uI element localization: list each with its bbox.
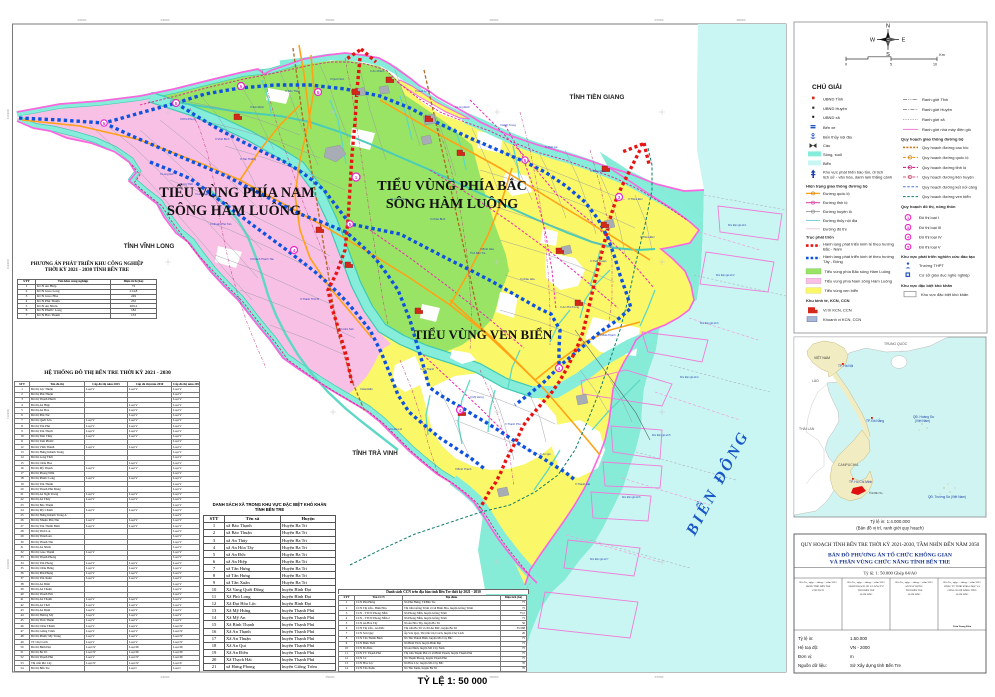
svg-text:1124000: 1124000	[6, 258, 10, 268]
svg-text:682000: 682000	[737, 18, 746, 22]
svg-text:656000: 656000	[326, 18, 335, 22]
svg-text:Bến Tre, ngày......tháng......: Bến Tre, ngày......tháng......năm 2023	[944, 581, 982, 584]
svg-text:Đơn vị:: Đơn vị:	[798, 654, 812, 659]
svg-text:Trần Trung Kiên: Trần Trung Kiên	[953, 625, 972, 628]
svg-text:Quy hoạch đường ven biển: Quy hoạch đường ven biển	[922, 194, 971, 199]
svg-text:1114000: 1114000	[6, 409, 10, 419]
svg-text:SỞ KẾ HOẠCH CH VÀ ĐẦU TƯ: SỞ KẾ HOẠCH CH VÀ ĐẦU TƯ	[848, 585, 883, 588]
svg-text:Khu kinh tế, KCN, CCN: Khu kinh tế, KCN, CCN	[806, 298, 850, 303]
svg-text:Khu vực đặc biệt khó khăn: Khu vực đặc biệt khó khăn	[901, 283, 953, 288]
svg-text:Bến Tre, ngày......tháng......: Bến Tre, ngày......tháng......năm 2023	[896, 581, 934, 584]
svg-text:5: 5	[907, 245, 909, 249]
svg-text:Bắc - Nam: Bắc - Nam	[823, 246, 843, 251]
svg-text:1104000: 1104000	[6, 558, 10, 568]
svg-text:Sở Xây dựng tỉnh Bến Tre: Sở Xây dựng tỉnh Bến Tre	[850, 663, 902, 668]
svg-text:(Việt Nam): (Việt Nam)	[915, 419, 930, 423]
svg-text:Quy hoạch đường tỉnh lộ: Quy hoạch đường tỉnh lộ	[922, 165, 967, 170]
svg-text:Bến thủy nội địa: Bến thủy nội địa	[823, 134, 852, 139]
svg-text:TỈNH BẾN TRE: TỈNH BẾN TRE	[906, 589, 923, 592]
svg-text:0: 0	[845, 63, 847, 67]
svg-text:Ranh giới Tỉnh: Ranh giới Tỉnh	[922, 97, 948, 102]
svg-text:Ranh giới nhà máy điện gió: Ranh giới nhà máy điện gió	[922, 127, 972, 132]
svg-text:UBND Tỉnh: UBND Tỉnh	[823, 96, 843, 101]
svg-text:TP. Đà Nẵng: TP. Đà Nẵng	[866, 418, 884, 423]
svg-text:VN - 2000: VN - 2000	[850, 645, 870, 650]
svg-text:666000: 666000	[490, 18, 499, 22]
svg-text:Đường đô thị: Đường đô thị	[823, 226, 847, 231]
svg-text:Trường THPT: Trường THPT	[919, 263, 944, 268]
svg-text:Tây - Đông: Tây - Đông	[823, 259, 843, 264]
svg-text:656000: 656000	[326, 675, 335, 679]
svg-text:Quy hoạch đường quốc lộ: Quy hoạch đường quốc lộ	[922, 155, 969, 160]
svg-text:BẢN ĐỒ PHƯƠNG ÁN TỔ CHỨC KHÔNG: BẢN ĐỒ PHƯƠNG ÁN TỔ CHỨC KHÔNG GIAN	[828, 551, 952, 559]
svg-text:E: E	[902, 38, 906, 44]
svg-text:3: 3	[907, 226, 909, 230]
svg-text:LÀO: LÀO	[812, 379, 819, 383]
svg-text:UBND Huyện: UBND Huyện	[823, 106, 847, 111]
svg-text:CHỦ TỊCH: CHỦ TỊCH	[812, 589, 824, 592]
svg-text:UBND xã: UBND xã	[823, 115, 840, 120]
svg-text:Đô thị loại V: Đô thị loại V	[919, 244, 941, 249]
svg-text:Hệ toạ độ:: Hệ toạ độ:	[798, 645, 818, 650]
svg-text:Đô thị loại IV: Đô thị loại IV	[919, 235, 942, 240]
svg-text:TỈNH BẾN TRE: TỈNH BẾN TRE	[858, 589, 875, 592]
svg-text:Đường quốc lộ: Đường quốc lộ	[823, 191, 850, 196]
svg-text:Biển: Biển	[823, 161, 831, 166]
svg-text:Bến xe: Bến xe	[823, 125, 836, 130]
svg-text:Bến Tre, ngày......tháng......: Bến Tre, ngày......tháng......năm 2023	[800, 581, 838, 584]
svg-text:Đường tỉnh lộ: Đường tỉnh lộ	[823, 200, 848, 205]
svg-text:Ranh giới xã: Ranh giới xã	[922, 117, 945, 122]
svg-text:Quy hoạch đô thị, nông thôn: Quy hoạch đô thị, nông thôn	[901, 204, 956, 209]
svg-text:Quy hoạch đường cao tốc: Quy hoạch đường cao tốc	[922, 145, 968, 150]
svg-text:Nguồn dữ liệu:: Nguồn dữ liệu:	[798, 663, 827, 668]
svg-text:THÁI LAN: THÁI LAN	[799, 427, 815, 431]
svg-text:N: N	[886, 24, 890, 30]
svg-text:1: 1	[907, 216, 909, 220]
svg-text:Tỷ lệ in:: Tỷ lệ in:	[798, 636, 813, 641]
svg-text:CAMPUCHIA: CAMPUCHIA	[838, 463, 859, 467]
svg-text:636000: 636000	[78, 18, 87, 22]
svg-text:1.50.000: 1.50.000	[850, 636, 868, 641]
svg-text:Sông, suối: Sông, suối	[823, 152, 842, 157]
svg-text:646000: 646000	[161, 675, 170, 679]
svg-text:Khoanh vi KCN, CCN: Khoanh vi KCN, CCN	[823, 317, 861, 322]
svg-text:Tỷ lệ in: 1:4.000.000: Tỷ lệ in: 1:4.000.000	[870, 519, 910, 524]
svg-text:(Bản đồ vị trí, ranh giới quy: (Bản đồ vị trí, ranh giới quy hoạch)	[856, 526, 924, 531]
svg-text:646000: 646000	[161, 18, 170, 22]
svg-text:QĐ. Trường Sa (Việt Nam): QĐ. Trường Sa (Việt Nam)	[928, 495, 966, 499]
svg-text:Km: Km	[939, 53, 944, 57]
svg-text:Đường thủy nội địa: Đường thủy nội địa	[823, 218, 858, 223]
svg-text:Đường huyện lộ: Đường huyện lộ	[823, 209, 853, 214]
svg-text:GIÁM ĐỐC: GIÁM ĐỐC	[908, 593, 921, 596]
svg-text:W: W	[870, 38, 876, 44]
svg-text:SỞ XÂY DỰNG: SỞ XÂY DỰNG	[905, 585, 922, 588]
svg-text:5: 5	[890, 63, 892, 67]
svg-text:QUY HOẠCH TỈNH BẾN TRE THỜI KỲ: QUY HOẠCH TỈNH BẾN TRE THỜI KỲ 2021-2030…	[801, 540, 980, 548]
svg-text:VIỆT NAM: VIỆT NAM	[814, 355, 830, 360]
svg-text:Hiện trạng giao thông đường bộ: Hiện trạng giao thông đường bộ	[806, 183, 868, 188]
svg-text:UBND TỈNH BẾN TRE: UBND TỈNH BẾN TRE	[806, 585, 831, 588]
svg-text:Tỷ lệ: 1: 50.000 Ghép 04/A0: Tỷ lệ: 1: 50.000 Ghép 04/A0	[863, 571, 917, 576]
svg-text:Tỉnh Bến Tre: Tỉnh Bến Tre	[869, 492, 883, 495]
svg-text:Tiểu vùng ven biển: Tiểu vùng ven biển	[825, 288, 859, 293]
svg-text:Cầu: Cầu	[823, 143, 830, 148]
svg-text:Cơ sở giáo dục nghề nghiệp: Cơ sở giáo dục nghề nghiệp	[919, 273, 970, 278]
svg-text:VÀ PHÂN VÙNG CHỨC NĂNG TỈNH BẾ: VÀ PHÂN VÙNG CHỨC NĂNG TỈNH BẾN TRE	[830, 558, 951, 566]
svg-text:GIÁM ĐỐC: GIÁM ĐỐC	[956, 593, 969, 596]
svg-text:Quy hoạch giao thông đường bộ: Quy hoạch giao thông đường bộ	[901, 137, 964, 142]
svg-text:CÔNG TY TNHH KHOA HỌC VÀ: CÔNG TY TNHH KHOA HỌC VÀ	[944, 585, 980, 588]
svg-text:Ranh giới Huyện: Ranh giới Huyện	[922, 107, 952, 112]
svg-text:Quy hoạch đường kết nối cảng: Quy hoạch đường kết nối cảng	[922, 184, 977, 189]
svg-text:Khu vực đặc biệt khó khăn: Khu vực đặc biệt khó khăn	[921, 292, 968, 297]
svg-text:m: m	[850, 654, 854, 659]
svg-text:TP. Hồ Chí Minh: TP. Hồ Chí Minh	[849, 480, 872, 484]
svg-text:Quy hoạch đường liên huyện: Quy hoạch đường liên huyện	[922, 175, 974, 180]
svg-text:GIÁM ĐỐC: GIÁM ĐỐC	[860, 593, 873, 596]
svg-text:Tiểu vùng phía Nam sông Hàm Lu: Tiểu vùng phía Nam sông Hàm Luông	[825, 278, 892, 283]
svg-text:Trục phát triển: Trục phát triển	[806, 235, 834, 240]
svg-text:Vị trí KCN, CCN: Vị trí KCN, CCN	[823, 308, 852, 313]
svg-text:10: 10	[933, 63, 937, 67]
svg-text:CHÚ GIẢI: CHÚ GIẢI	[812, 82, 842, 91]
svg-text:Đô thị loại I: Đô thị loại I	[919, 215, 939, 220]
svg-text:676000: 676000	[655, 675, 664, 679]
svg-text:lịch sử - văn hóa, danh lam th: lịch sử - văn hóa, danh lam thắng cảnh	[823, 175, 892, 180]
svg-text:1134000: 1134000	[6, 108, 10, 118]
svg-text:Đô thị loại III: Đô thị loại III	[919, 225, 941, 230]
svg-text:TRUNG QUỐC: TRUNG QUỐC	[884, 341, 908, 346]
svg-text:TP. Hà Nội: TP. Hà Nội	[838, 364, 853, 368]
svg-text:CÔNG NGHỆ ĐỒNG TIẾN: CÔNG NGHỆ ĐỒNG TIẾN	[948, 589, 977, 592]
svg-text:676000: 676000	[655, 18, 664, 22]
svg-text:Khu vực phát triển nghiên cứu: Khu vực phát triển nghiên cứu đào tạo	[901, 254, 975, 259]
svg-text:Bến Tre, ngày......tháng......: Bến Tre, ngày......tháng......năm 2023	[848, 581, 886, 584]
svg-text:Tiểu vùng phía Bắc sông Hàm Lu: Tiểu vùng phía Bắc sông Hàm Luông	[825, 269, 891, 274]
